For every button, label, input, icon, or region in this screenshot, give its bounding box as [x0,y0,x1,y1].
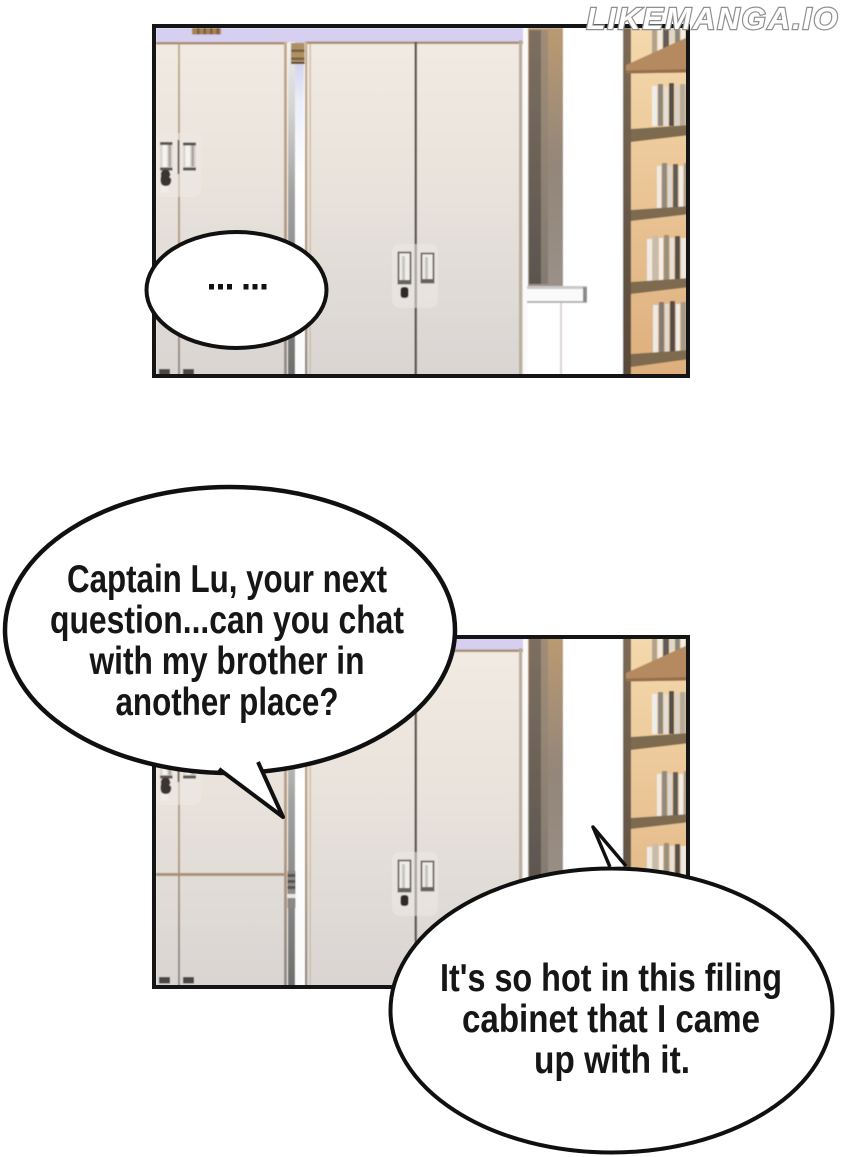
svg-text:LIKEMANGA.IO: LIKEMANGA.IO [586,1,839,36]
svg-text:Captain Lu, your next: Captain Lu, your next [67,558,387,601]
svg-text:cabinet that I came: cabinet that I came [462,998,760,1041]
svg-text:It's so hot in this filing: It's so hot in this filing [440,957,782,1000]
svg-text:up with it.: up with it. [534,1039,690,1082]
svg-text:another place?: another place? [116,681,339,724]
svg-text:question...can you chat: question...can you chat [50,599,404,642]
svg-text:with my brother in: with my brother in [89,640,365,683]
